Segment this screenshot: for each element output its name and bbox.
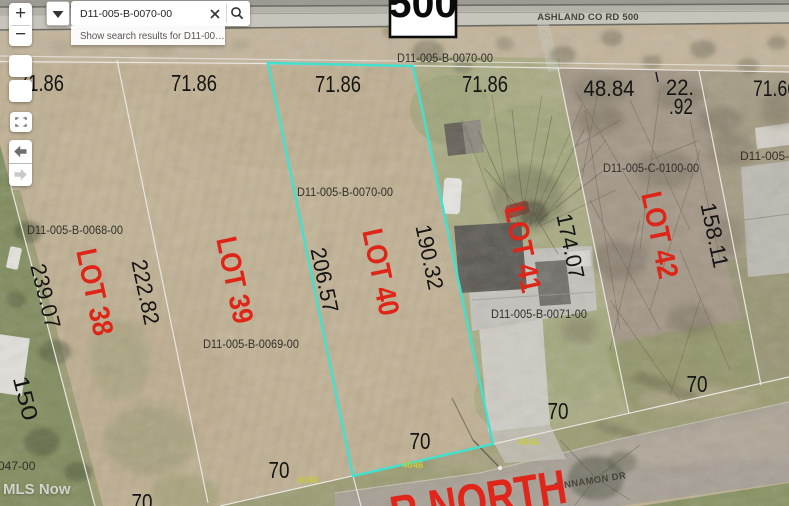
svg-text:D11-005-B-0069-00: D11-005-B-0069-00 — [203, 337, 299, 351]
svg-text:4046: 4046 — [518, 437, 539, 448]
svg-text:71.66: 71.66 — [753, 76, 789, 101]
svg-text:D11-005-B-0068-00: D11-005-B-0068-00 — [27, 223, 123, 237]
svg-text:70: 70 — [410, 428, 431, 454]
svg-text:71.86: 71.86 — [171, 70, 217, 96]
svg-text:500: 500 — [389, 0, 457, 26]
svg-text:D11-005-B-0070-00: D11-005-B-0070-00 — [397, 51, 493, 65]
svg-text:70: 70 — [548, 398, 569, 424]
svg-text:70: 70 — [269, 457, 290, 483]
svg-text:D11-005-B-0070-00: D11-005-B-0070-00 — [297, 185, 393, 199]
svg-text:4048: 4048 — [297, 475, 318, 486]
svg-text:70: 70 — [132, 489, 153, 506]
svg-text:.92: .92 — [669, 94, 693, 119]
svg-text:48.84: 48.84 — [584, 76, 635, 101]
svg-text:D11-005-B-0071-00: D11-005-B-0071-00 — [491, 307, 587, 321]
svg-text:70: 70 — [687, 371, 708, 397]
svg-text:D11-005-C-0100-00: D11-005-C-0100-00 — [603, 161, 699, 175]
svg-text:71.86: 71.86 — [462, 71, 508, 97]
svg-text:D11-005-C-01: D11-005-C-01 — [740, 149, 789, 163]
svg-text:047-00: 047-00 — [0, 459, 36, 473]
svg-text:71.86: 71.86 — [315, 71, 361, 97]
svg-text:4046: 4046 — [402, 460, 423, 471]
svg-text:ASHLAND CO RD 500: ASHLAND CO RD 500 — [537, 12, 639, 23]
